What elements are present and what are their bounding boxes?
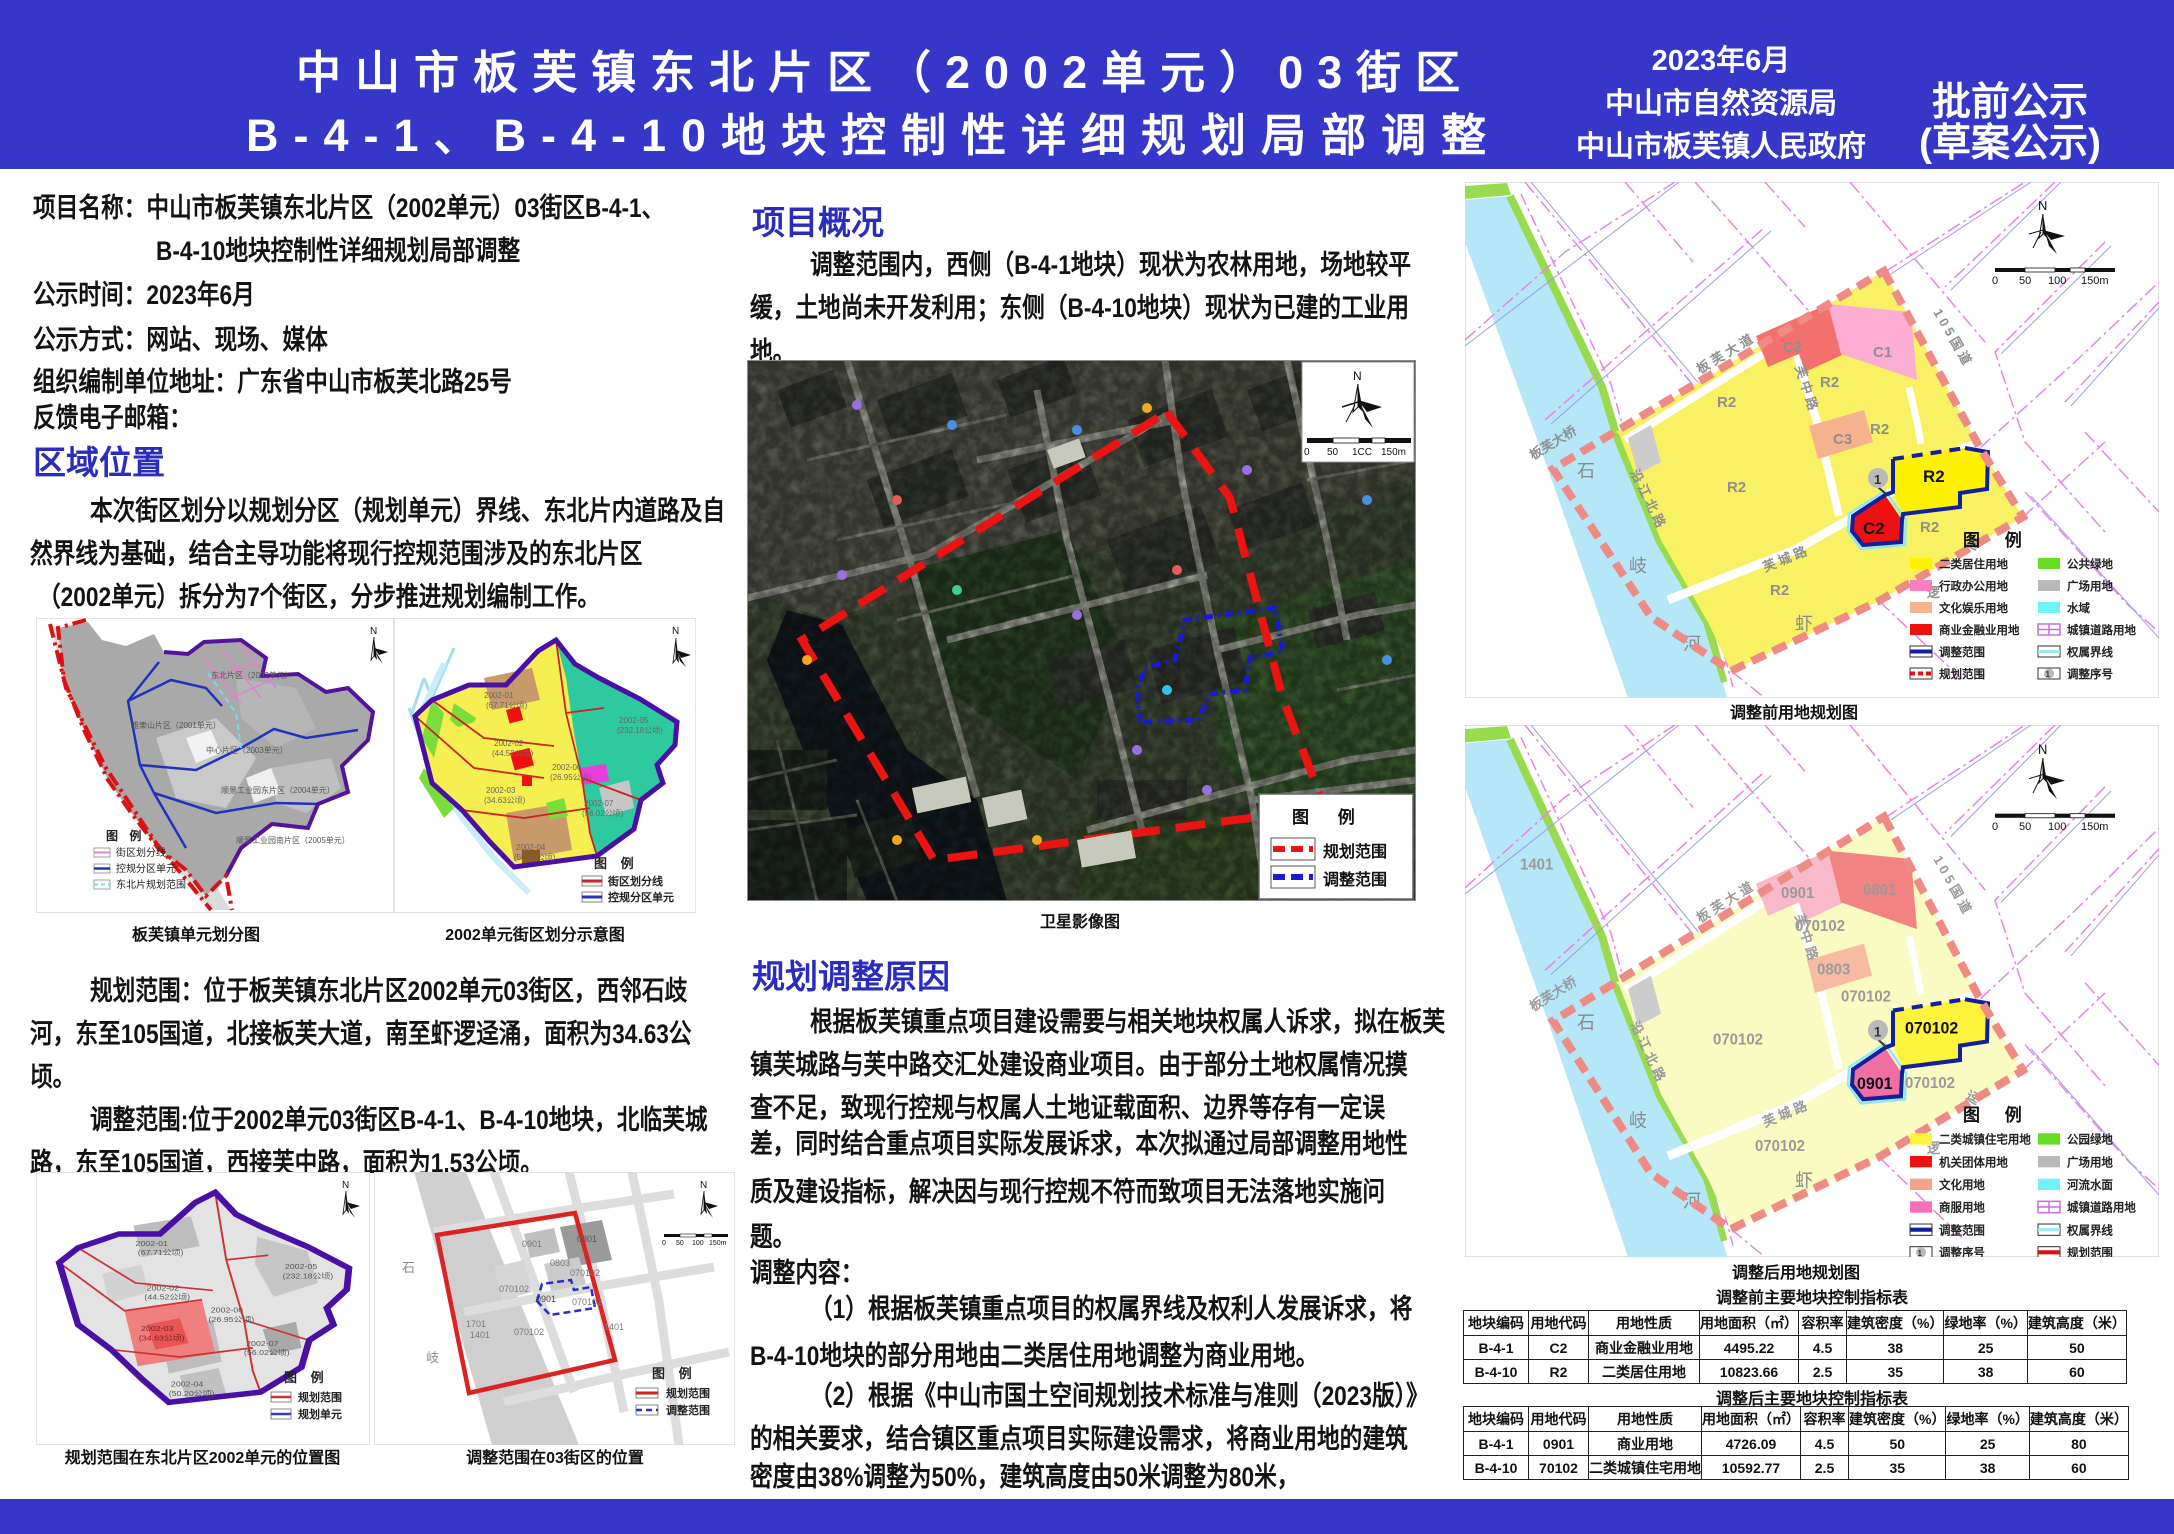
svg-text:东北片规划范围: 东北片规划范围 xyxy=(116,878,186,891)
svg-text:规划范围: 规划范围 xyxy=(2067,1246,2113,1257)
svg-text:调整序号: 调整序号 xyxy=(1939,1246,1985,1257)
svg-text:石: 石 xyxy=(402,1260,415,1275)
svg-text:岐: 岐 xyxy=(426,1350,439,1365)
svg-text:城镇道路用地: 城镇道路用地 xyxy=(2067,1200,2136,1214)
svg-text:070102: 070102 xyxy=(1713,1031,1763,1048)
svg-text:0901: 0901 xyxy=(1781,885,1815,902)
svg-text:2002-03: 2002-03 xyxy=(141,1325,174,1333)
svg-text:二类城镇住宅用地: 二类城镇住宅用地 xyxy=(1939,1132,2031,1146)
svg-text:图 例: 图 例 xyxy=(1292,807,1367,827)
svg-text:图 例: 图 例 xyxy=(652,1366,697,1381)
svg-text:150m: 150m xyxy=(2081,821,2108,833)
svg-text:R2: R2 xyxy=(1717,394,1736,411)
svg-text:规划范围: 规划范围 xyxy=(1323,842,1387,861)
svg-text:070102: 070102 xyxy=(499,1284,529,1294)
svg-text:(26.95公顷): (26.95公顷) xyxy=(550,773,592,782)
svg-text:图 例: 图 例 xyxy=(1963,1105,2032,1125)
svg-text:权属界线: 权属界线 xyxy=(2066,645,2113,659)
svg-text:2002-01: 2002-01 xyxy=(136,1240,169,1248)
svg-text:调整范围: 调整范围 xyxy=(1939,1223,1985,1237)
svg-text:调整范围: 调整范围 xyxy=(1323,870,1387,889)
svg-text:公园绿地: 公园绿地 xyxy=(2067,1132,2113,1146)
svg-text:0: 0 xyxy=(1304,447,1310,458)
svg-text:顺景工业园东片区（2004单元）: 顺景工业园东片区（2004单元） xyxy=(221,785,335,795)
svg-text:N: N xyxy=(370,626,377,637)
svg-text:2002-01: 2002-01 xyxy=(484,691,514,700)
svg-text:(232.18公顷): (232.18公顷) xyxy=(617,726,663,735)
svg-text:R2: R2 xyxy=(1770,582,1789,599)
svg-text:2002-05: 2002-05 xyxy=(619,716,649,725)
svg-text:石: 石 xyxy=(1577,1012,1595,1033)
svg-text:070102: 070102 xyxy=(572,1297,602,1307)
svg-text:虾: 虾 xyxy=(1795,614,1813,634)
svg-text:R2: R2 xyxy=(1920,519,1939,536)
svg-text:0801: 0801 xyxy=(1863,882,1897,899)
svg-text:规划范围: 规划范围 xyxy=(298,1390,342,1404)
svg-text:控规分区单元: 控规分区单元 xyxy=(608,890,674,904)
svg-text:1401: 1401 xyxy=(1520,856,1554,873)
svg-text:2002-04: 2002-04 xyxy=(516,843,546,852)
svg-text:N: N xyxy=(672,626,679,637)
svg-text:(44.52公顷): (44.52公顷) xyxy=(144,1293,190,1301)
svg-text:(26.95公顷): (26.95公顷) xyxy=(209,1315,255,1323)
svg-text:C1: C1 xyxy=(1873,344,1892,361)
svg-text:(56.02公顷): (56.02公顷) xyxy=(582,809,624,818)
svg-text:(56.02公顷): (56.02公顷) xyxy=(244,1349,290,1357)
svg-text:N: N xyxy=(2038,742,2047,757)
svg-text:控规分区单元: 控规分区单元 xyxy=(116,862,176,875)
svg-text:150m: 150m xyxy=(1381,447,1406,458)
svg-text:(67.71公顷): (67.71公顷) xyxy=(486,701,528,710)
svg-text:岐: 岐 xyxy=(1629,1110,1647,1131)
svg-text:水域: 水域 xyxy=(2067,601,2091,615)
svg-text:岐: 岐 xyxy=(1629,556,1647,576)
svg-text:50: 50 xyxy=(676,1240,684,1247)
svg-text:1CC: 1CC xyxy=(1352,447,1372,458)
svg-text:东北片区（2002单元）: 东北片区（2002单元） xyxy=(211,670,293,680)
svg-text:1: 1 xyxy=(1874,1024,1881,1039)
svg-text:150m: 150m xyxy=(709,1240,727,1247)
svg-text:1: 1 xyxy=(1918,1249,1923,1257)
svg-text:雅樂山片区（2001单元）: 雅樂山片区（2001单元） xyxy=(131,720,221,730)
svg-text:(232.18公顷): (232.18公顷) xyxy=(283,1272,334,1280)
svg-text:N: N xyxy=(1353,369,1362,383)
svg-text:1701: 1701 xyxy=(466,1319,486,1329)
svg-text:文化用地: 文化用地 xyxy=(1938,1178,1985,1192)
svg-text:(50.20公顷): (50.20公顷) xyxy=(514,853,556,862)
svg-text:R2: R2 xyxy=(1727,479,1746,496)
svg-text:070102: 070102 xyxy=(1755,1138,1805,1155)
svg-text:R2: R2 xyxy=(1923,467,1945,486)
svg-text:(44.52公顷): (44.52公顷) xyxy=(492,749,534,758)
svg-text:广场用地: 广场用地 xyxy=(2067,579,2113,593)
svg-text:公共绿地: 公共绿地 xyxy=(2067,557,2113,571)
svg-text:N: N xyxy=(2038,198,2047,213)
svg-text:0901: 0901 xyxy=(1857,1075,1893,1093)
svg-text:调整范围: 调整范围 xyxy=(666,1403,710,1417)
svg-text:N: N xyxy=(700,1180,707,1191)
svg-text:图 例: 图 例 xyxy=(1963,530,2032,550)
svg-text:070102: 070102 xyxy=(514,1327,544,1337)
svg-text:2002-03: 2002-03 xyxy=(486,786,516,795)
svg-text:中心片区（2003单元）: 中心片区（2003单元） xyxy=(206,745,288,755)
svg-text:2002-05: 2002-05 xyxy=(285,1263,318,1271)
svg-text:0901: 0901 xyxy=(536,1294,556,1304)
svg-text:R2: R2 xyxy=(1820,374,1839,391)
svg-text:070102: 070102 xyxy=(1905,1019,1958,1037)
svg-text:文化娱乐用地: 文化娱乐用地 xyxy=(1939,601,2008,615)
svg-text:(34.63公顷): (34.63公顷) xyxy=(484,796,526,805)
svg-text:2002-07: 2002-07 xyxy=(246,1340,279,1348)
svg-text:规划范围: 规划范围 xyxy=(666,1386,710,1400)
svg-text:权属界线: 权属界线 xyxy=(2066,1223,2113,1237)
svg-text:2002-07: 2002-07 xyxy=(584,799,614,808)
svg-text:100: 100 xyxy=(692,1240,704,1247)
svg-text:规划单元: 规划单元 xyxy=(298,1407,342,1421)
svg-text:(34.63公顷): (34.63公顷) xyxy=(139,1334,185,1342)
svg-text:1401: 1401 xyxy=(604,1322,624,1332)
svg-text:0: 0 xyxy=(1992,821,1998,833)
svg-text:顺景工业园南片区（2005单元）: 顺景工业园南片区（2005单元） xyxy=(236,835,350,845)
svg-text:街区划分线: 街区划分线 xyxy=(116,846,166,859)
svg-text:100: 100 xyxy=(2048,275,2066,287)
svg-text:0803: 0803 xyxy=(1817,961,1850,978)
svg-text:2002-06: 2002-06 xyxy=(211,1306,244,1314)
svg-text:2002-02: 2002-02 xyxy=(147,1284,180,1292)
svg-text:1401: 1401 xyxy=(470,1330,490,1340)
svg-text:0: 0 xyxy=(1992,275,1998,287)
svg-text:150m: 150m xyxy=(2081,275,2109,287)
svg-text:行政办公用地: 行政办公用地 xyxy=(1938,579,2008,593)
svg-text:调整序号: 调整序号 xyxy=(2067,667,2113,681)
svg-text:(67.71公顷): (67.71公顷) xyxy=(138,1249,184,1257)
svg-text:100: 100 xyxy=(2048,821,2066,833)
svg-text:河流水面: 河流水面 xyxy=(2067,1178,2113,1192)
svg-text:C2: C2 xyxy=(1863,519,1885,538)
svg-text:50: 50 xyxy=(2019,821,2031,833)
svg-text:城镇道路用地: 城镇道路用地 xyxy=(2067,623,2136,637)
svg-text:2002-06: 2002-06 xyxy=(552,763,582,772)
svg-text:0: 0 xyxy=(662,1240,666,1247)
svg-text:1: 1 xyxy=(2046,670,2051,679)
svg-text:2002-02: 2002-02 xyxy=(494,739,524,748)
svg-text:50: 50 xyxy=(1327,447,1339,458)
svg-text:2002-04: 2002-04 xyxy=(171,1380,204,1388)
svg-text:070102: 070102 xyxy=(1841,988,1891,1005)
svg-text:N: N xyxy=(342,1180,349,1191)
svg-text:070102: 070102 xyxy=(570,1268,600,1278)
svg-text:0803: 0803 xyxy=(550,1258,570,1268)
svg-text:0901: 0901 xyxy=(522,1239,542,1249)
svg-text:调整范围: 调整范围 xyxy=(1939,645,1985,659)
svg-text:图 例: 图 例 xyxy=(594,856,639,871)
svg-text:(50.20公顷): (50.20公顷) xyxy=(169,1389,215,1397)
svg-text:50: 50 xyxy=(2019,275,2031,287)
svg-text:商服用地: 商服用地 xyxy=(1939,1200,1985,1214)
svg-text:图 例: 图 例 xyxy=(284,1370,329,1385)
svg-text:图 例: 图 例 xyxy=(106,828,145,843)
svg-text:0801: 0801 xyxy=(577,1234,597,1244)
svg-text:机关团体用地: 机关团体用地 xyxy=(1939,1155,2008,1169)
svg-text:C2: C2 xyxy=(1783,339,1802,356)
svg-text:商业金融业用地: 商业金融业用地 xyxy=(1939,623,2020,637)
svg-text:C3: C3 xyxy=(1833,431,1852,448)
svg-text:1: 1 xyxy=(1874,472,1881,487)
svg-text:规划范围: 规划范围 xyxy=(1939,667,1985,681)
svg-text:二类居住用地: 二类居住用地 xyxy=(1939,557,2008,571)
svg-text:石: 石 xyxy=(1577,461,1595,481)
svg-text:虾: 虾 xyxy=(1795,1170,1813,1191)
svg-text:街区划分线: 街区划分线 xyxy=(607,874,663,888)
svg-text:广场用地: 广场用地 xyxy=(2067,1155,2113,1169)
svg-text:R2: R2 xyxy=(1870,421,1889,438)
svg-text:070102: 070102 xyxy=(1905,1075,1955,1092)
